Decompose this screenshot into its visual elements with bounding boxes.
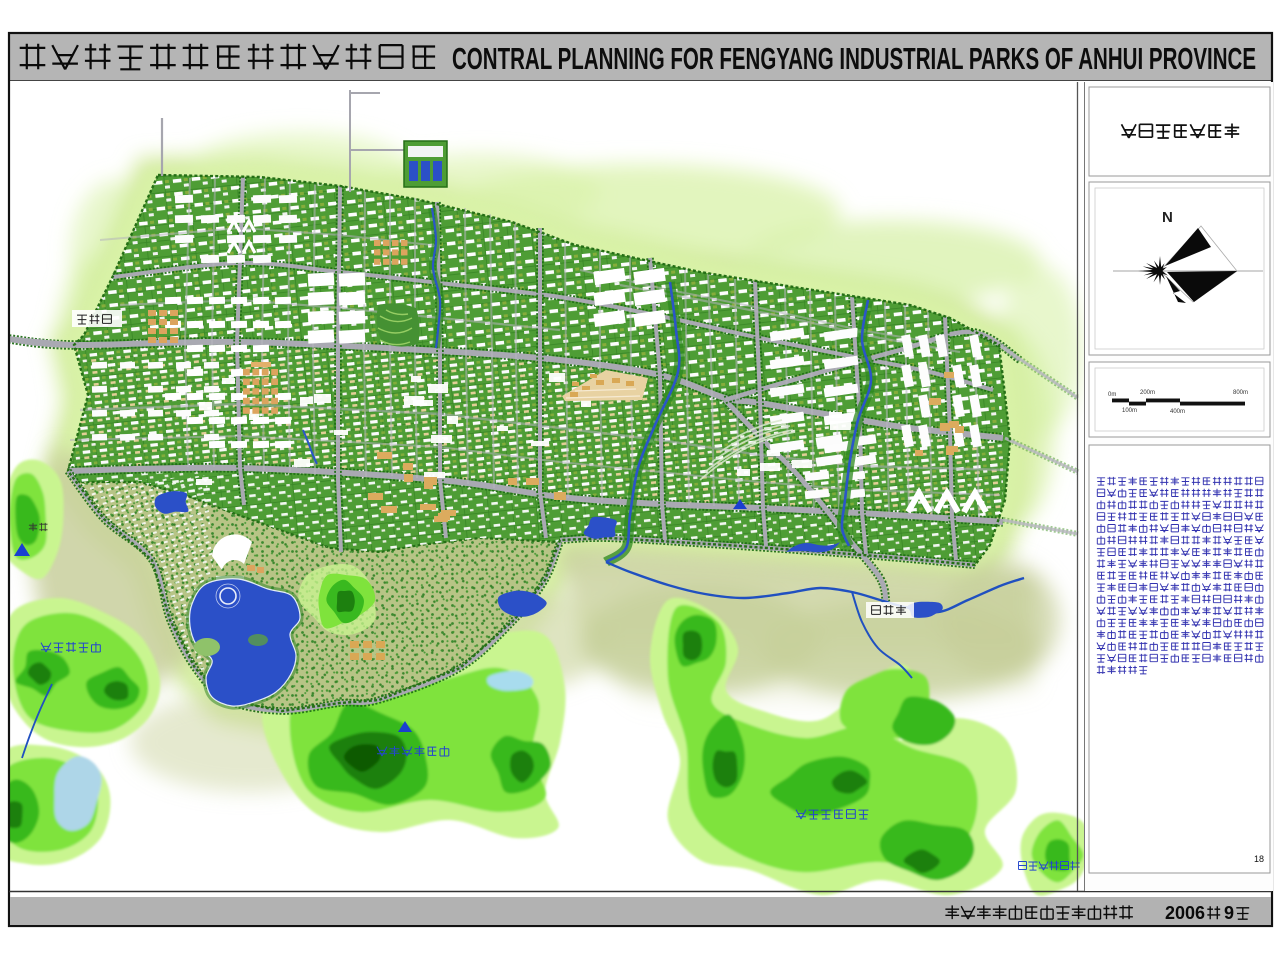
svg-text:9: 9	[1224, 903, 1234, 923]
svg-text:18: 18	[1254, 854, 1264, 864]
svg-text:2006: 2006	[1165, 903, 1205, 923]
svg-text:800m: 800m	[1233, 390, 1248, 396]
svg-text:N: N	[1162, 209, 1173, 226]
svg-text:100m: 100m	[1122, 408, 1137, 414]
svg-text:200m: 200m	[1140, 390, 1155, 396]
svg-text:CONTRAL PLANNING FOR FENGYANG: CONTRAL PLANNING FOR FENGYANG INDUSTRIAL…	[452, 41, 1256, 76]
svg-text:0m: 0m	[1108, 392, 1116, 398]
svg-text:400m: 400m	[1170, 409, 1185, 415]
